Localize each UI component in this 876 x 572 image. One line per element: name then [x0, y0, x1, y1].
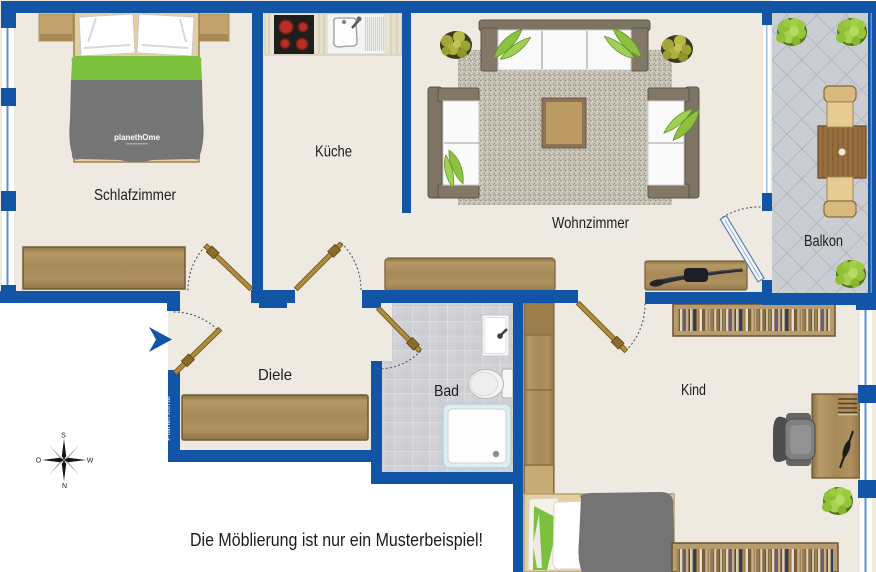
- svg-text:Balkon: Balkon: [804, 233, 843, 250]
- svg-text:planethOme: planethOme: [114, 133, 161, 142]
- svg-text:N: N: [62, 483, 67, 490]
- svg-text:Diele: Diele: [258, 367, 292, 384]
- svg-text:Kind: Kind: [681, 382, 706, 399]
- svg-text:O: O: [36, 458, 42, 465]
- svg-text:W: W: [87, 458, 94, 465]
- svg-text:Bad: Bad: [434, 383, 459, 400]
- svg-text:Die Möblierung ist nur ein Mus: Die Möblierung ist nur ein Musterbeispie…: [190, 529, 483, 550]
- svg-text:S: S: [61, 433, 66, 440]
- svg-text:Küche: Küche: [315, 144, 352, 161]
- svg-text:Wohnzimmer: Wohnzimmer: [552, 215, 630, 232]
- svg-text:PlaneHome: PlaneHome: [165, 395, 172, 441]
- svg-text:Schlafzimmer: Schlafzimmer: [94, 187, 177, 204]
